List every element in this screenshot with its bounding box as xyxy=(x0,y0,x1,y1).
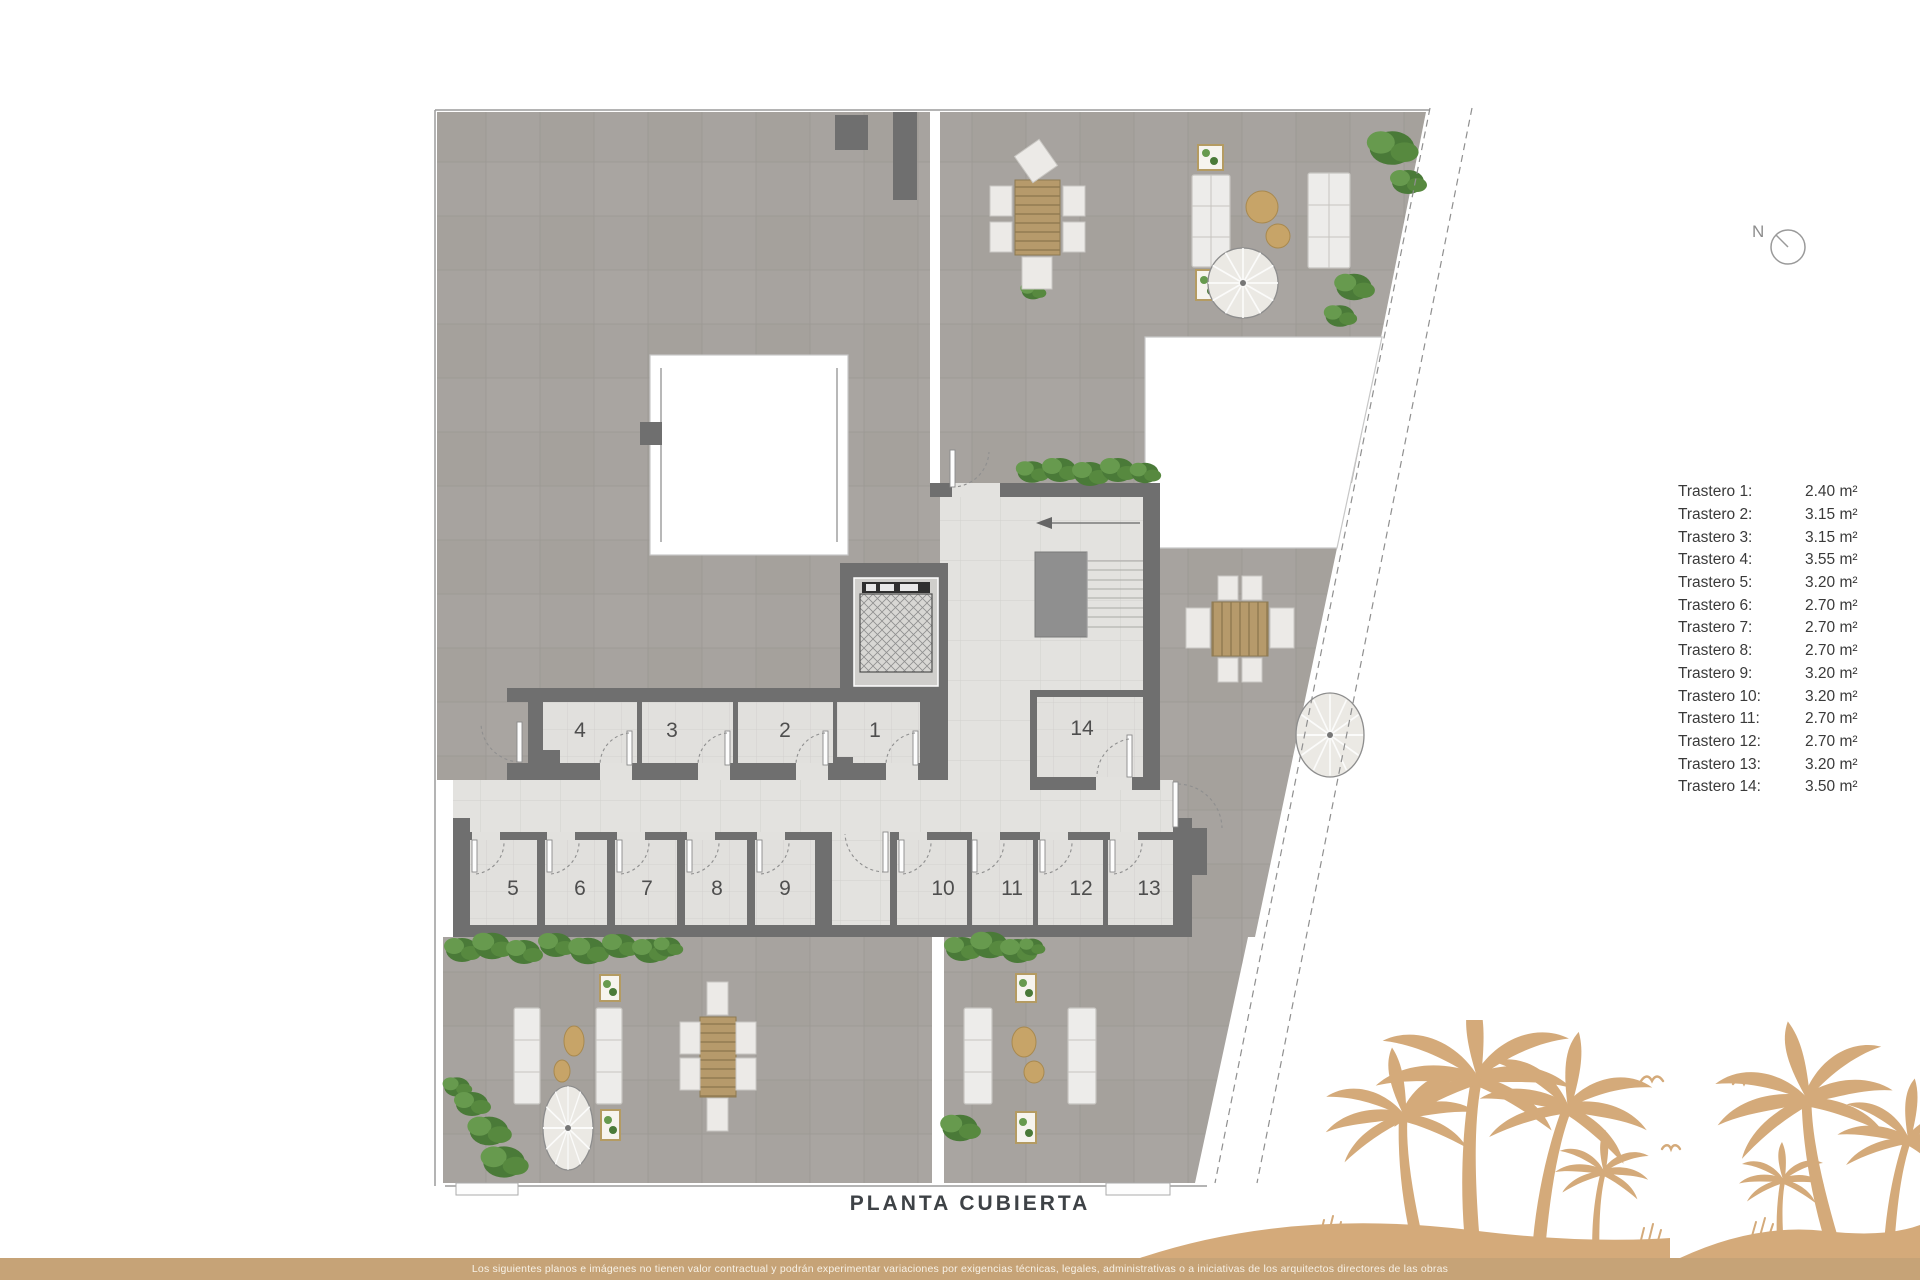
room-number-9: 9 xyxy=(779,877,791,901)
legend-room-label: Trastero 8: xyxy=(1678,642,1805,660)
legend-row: Trastero 2:3.15 m² xyxy=(1678,504,1888,527)
north-indicator: N xyxy=(1748,222,1818,272)
palm-beach-artwork xyxy=(1140,1020,1920,1258)
legend-room-area: 3.20 m² xyxy=(1805,756,1885,774)
legend-room-label: Trastero 9: xyxy=(1678,665,1805,683)
legend-row: Trastero 3:3.15 m² xyxy=(1678,526,1888,549)
room-number-6: 6 xyxy=(574,877,586,901)
room-number-11: 11 xyxy=(1001,877,1023,901)
chimney xyxy=(893,112,917,200)
legend-room-area: 3.20 m² xyxy=(1805,665,1885,683)
legend-row: Trastero 12:2.70 m² xyxy=(1678,731,1888,754)
legend-room-area: 2.70 m² xyxy=(1805,597,1885,615)
legend-room-label: Trastero 10: xyxy=(1678,688,1805,706)
legend-room-label: Trastero 4: xyxy=(1678,551,1805,569)
parasol xyxy=(1208,248,1278,318)
legend-room-area: 3.20 m² xyxy=(1805,574,1885,592)
room-number-5: 5 xyxy=(507,877,519,901)
room-number-10: 10 xyxy=(931,877,954,901)
legend-room-label: Trastero 5: xyxy=(1678,574,1805,592)
legend-row: Trastero 6:2.70 m² xyxy=(1678,594,1888,617)
legend-row: Trastero 10:3.20 m² xyxy=(1678,685,1888,708)
chimney xyxy=(835,115,868,150)
legend-room-area: 3.15 m² xyxy=(1805,529,1885,547)
room-number-7: 7 xyxy=(641,877,653,901)
legend-room-label: Trastero 1: xyxy=(1678,483,1805,501)
disclaimer-text: Los siguientes planos e imágenes no tien… xyxy=(472,1263,1448,1275)
legend-room-area: 3.20 m² xyxy=(1805,688,1885,706)
legend-row: Trastero 8:2.70 m² xyxy=(1678,640,1888,663)
legend-room-area: 3.50 m² xyxy=(1805,778,1885,796)
legend-row: Trastero 5:3.20 m² xyxy=(1678,572,1888,595)
legend-row: Trastero 7:2.70 m² xyxy=(1678,617,1888,640)
page-title: PLANTA CUBIERTA xyxy=(850,1192,1091,1216)
north-label: N xyxy=(1752,222,1764,242)
legend-room-label: Trastero 14: xyxy=(1678,778,1805,796)
legend-row: Trastero 14:3.50 m² xyxy=(1678,776,1888,799)
room-number-13: 13 xyxy=(1137,877,1160,901)
legend-room-area: 3.15 m² xyxy=(1805,506,1885,524)
legend-room-area: 2.70 m² xyxy=(1805,619,1885,637)
legend-row: Trastero 11:2.70 m² xyxy=(1678,708,1888,731)
room-number-4: 4 xyxy=(574,719,586,743)
legend-room-label: Trastero 3: xyxy=(1678,529,1805,547)
room-number-8: 8 xyxy=(711,877,723,901)
parasol xyxy=(1296,693,1364,777)
room-number-2: 2 xyxy=(779,719,791,743)
storeroom-legend: Trastero 1:2.40 m²Trastero 2:3.15 m²Tras… xyxy=(1678,481,1888,799)
legend-room-area: 2.40 m² xyxy=(1805,483,1885,501)
legend-room-label: Trastero 6: xyxy=(1678,597,1805,615)
legend-row: Trastero 1:2.40 m² xyxy=(1678,481,1888,504)
legend-room-area: 2.70 m² xyxy=(1805,642,1885,660)
parasol xyxy=(543,1086,593,1170)
legend-room-area: 2.70 m² xyxy=(1805,710,1885,728)
floor-plan-page: 1234567891011121314 Trastero 1:2.40 m²Tr… xyxy=(0,0,1920,1280)
legend-room-label: Trastero 2: xyxy=(1678,506,1805,524)
legend-room-label: Trastero 13: xyxy=(1678,756,1805,774)
elevator xyxy=(840,563,948,700)
room-number-3: 3 xyxy=(666,719,678,743)
room-number-12: 12 xyxy=(1069,877,1092,901)
disclaimer-bar: Los siguientes planos e imágenes no tien… xyxy=(0,1258,1920,1280)
legend-room-label: Trastero 7: xyxy=(1678,619,1805,637)
legend-room-label: Trastero 11: xyxy=(1678,710,1805,728)
legend-row: Trastero 13:3.20 m² xyxy=(1678,753,1888,776)
legend-room-label: Trastero 12: xyxy=(1678,733,1805,751)
room-number-14: 14 xyxy=(1070,717,1093,741)
room-number-1: 1 xyxy=(869,719,881,743)
legend-row: Trastero 4:3.55 m² xyxy=(1678,549,1888,572)
legend-row: Trastero 9:3.20 m² xyxy=(1678,663,1888,686)
legend-room-area: 2.70 m² xyxy=(1805,733,1885,751)
legend-room-area: 3.55 m² xyxy=(1805,551,1885,569)
roof-hatch-handle xyxy=(640,422,662,445)
